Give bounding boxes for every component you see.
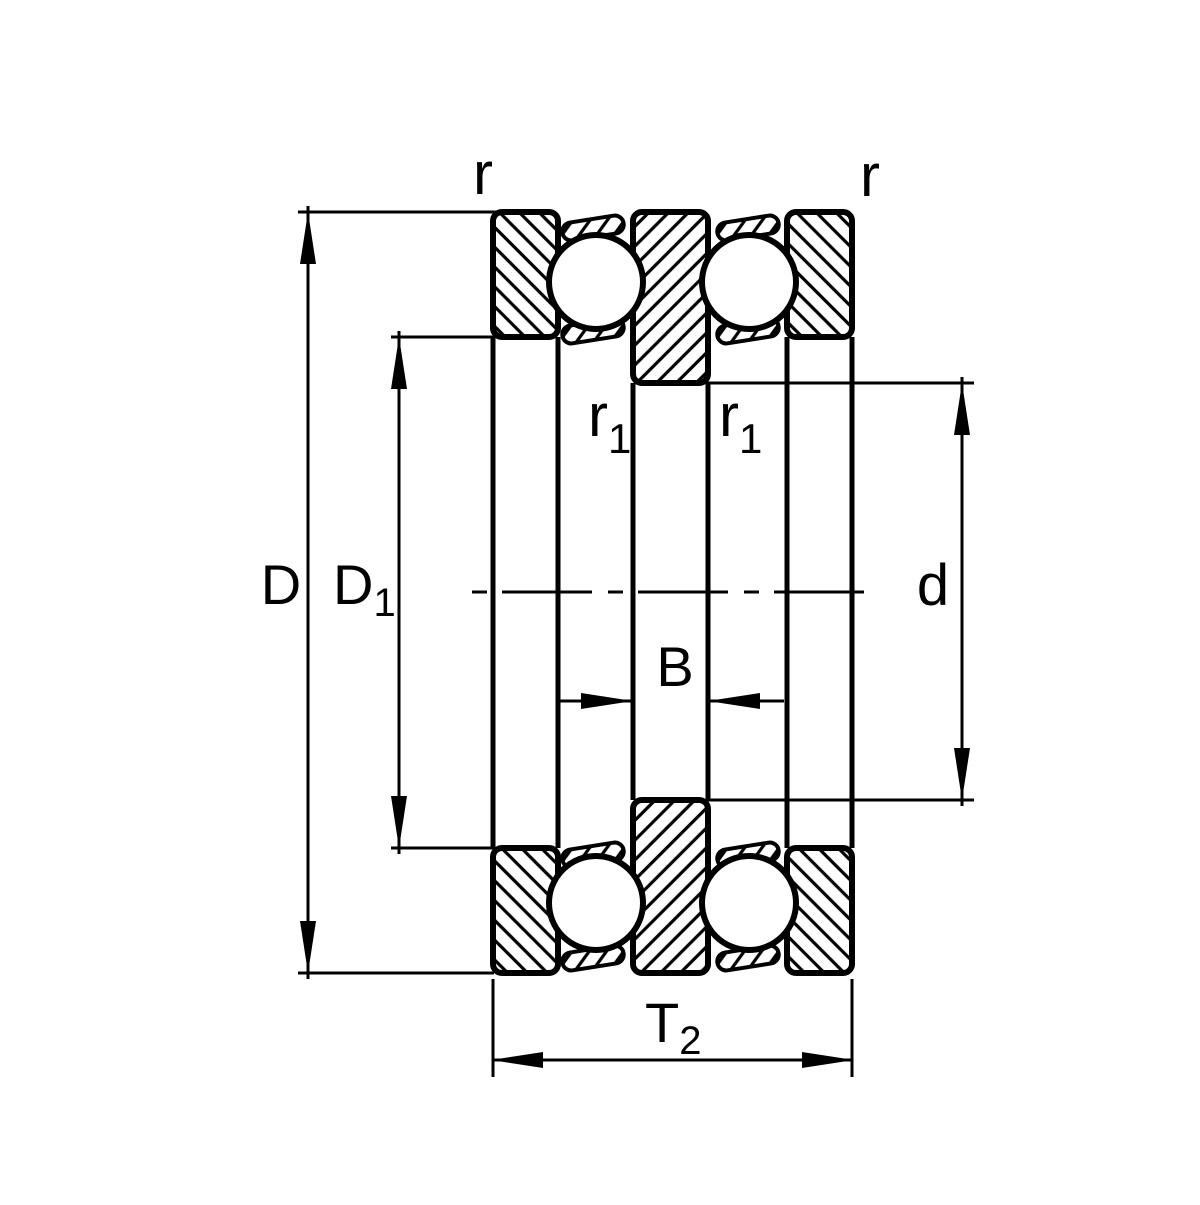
- arrow-B-right: [581, 693, 633, 709]
- arrow-d-up: [954, 383, 970, 435]
- arrow-d-down: [954, 748, 970, 800]
- label-chamfer-top-left: r: [473, 140, 493, 207]
- ball-bottom-left: [549, 856, 643, 950]
- label-housing-washer-bore: D1: [333, 553, 396, 625]
- label-chamfer-shaft-left: r1: [588, 382, 631, 462]
- arrow-D-up: [300, 212, 316, 264]
- label-bore-diameter: d: [917, 553, 949, 618]
- bearing-diagram: D D1 d B T2 r r r1 r1: [0, 0, 1200, 1200]
- label-shaft-washer-width: B: [656, 635, 693, 698]
- arrow-B-left: [708, 693, 760, 709]
- shaft-washer-bottom: [633, 800, 708, 973]
- ball-top-right: [702, 235, 796, 329]
- arrow-D1-down: [391, 796, 407, 848]
- arrow-T2-left: [491, 1052, 543, 1068]
- arrow-T2-right: [802, 1052, 854, 1068]
- ball-top-left: [549, 235, 643, 329]
- arrow-D-down: [300, 921, 316, 973]
- label-bearing-height: T2: [645, 991, 701, 1063]
- label-chamfer-top-right: r: [860, 142, 880, 209]
- arrow-D1-up: [391, 337, 407, 389]
- drawing-canvas: D D1 d B T2 r r r1 r1: [0, 0, 1200, 1200]
- label-outer-diameter: D: [261, 553, 301, 616]
- shaft-washer-top: [633, 212, 708, 383]
- label-chamfer-shaft-right: r1: [719, 382, 762, 462]
- ball-bottom-right: [702, 856, 796, 950]
